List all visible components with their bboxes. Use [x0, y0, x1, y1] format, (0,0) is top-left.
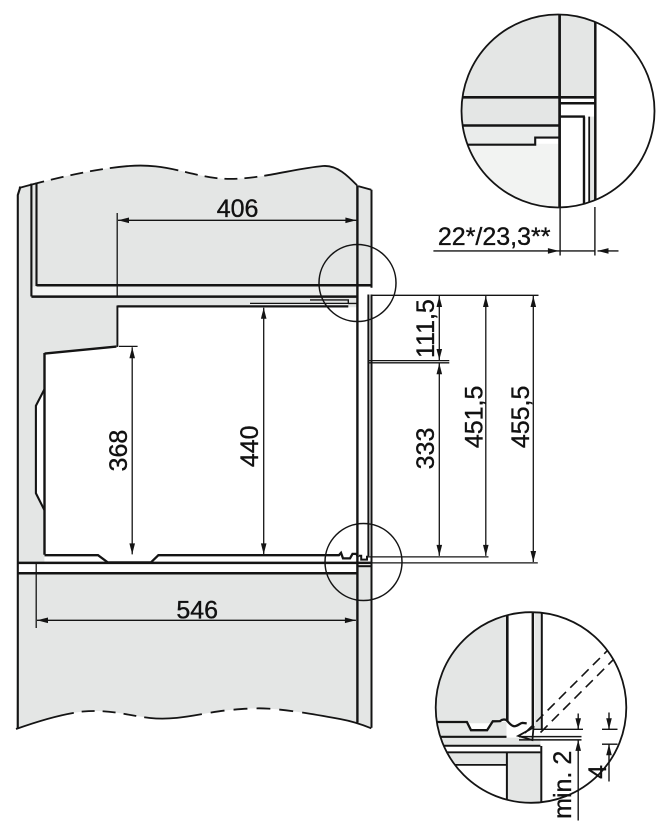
svg-text:111,5: 111,5: [412, 299, 440, 358]
svg-text:22*/23,3**: 22*/23,3**: [438, 223, 551, 251]
svg-text:406: 406: [217, 195, 259, 223]
svg-text:440: 440: [236, 425, 264, 467]
svg-text:min. 2: min. 2: [549, 751, 577, 819]
svg-text:368: 368: [105, 430, 133, 472]
svg-text:4: 4: [584, 765, 612, 779]
svg-text:546: 546: [176, 596, 218, 624]
svg-text:333: 333: [412, 428, 440, 470]
svg-text:455,5: 455,5: [507, 386, 535, 449]
svg-text:451,5: 451,5: [460, 386, 488, 449]
